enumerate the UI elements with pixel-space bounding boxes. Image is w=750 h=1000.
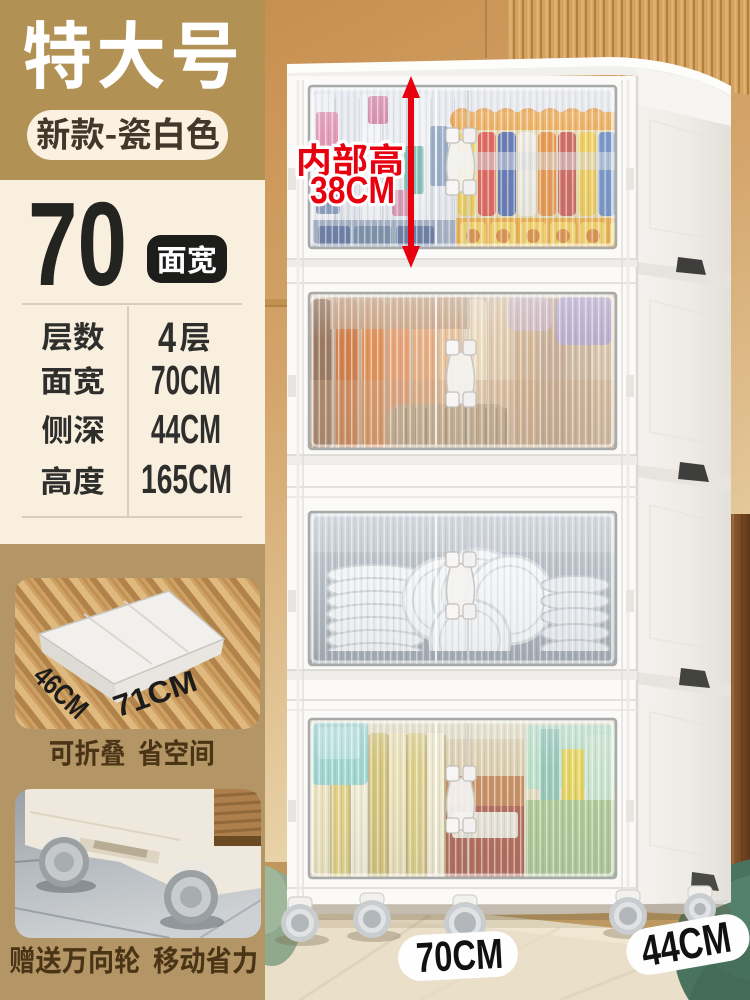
svg-text:70: 70 <box>28 178 127 311</box>
svg-text:165CM: 165CM <box>141 457 232 502</box>
svg-text:38CM: 38CM <box>310 169 395 211</box>
svg-text:70CM: 70CM <box>151 358 221 403</box>
svg-text:4: 4 <box>158 314 176 361</box>
svg-text:44CM: 44CM <box>151 407 221 452</box>
svg-text:70CM: 70CM <box>415 930 504 981</box>
